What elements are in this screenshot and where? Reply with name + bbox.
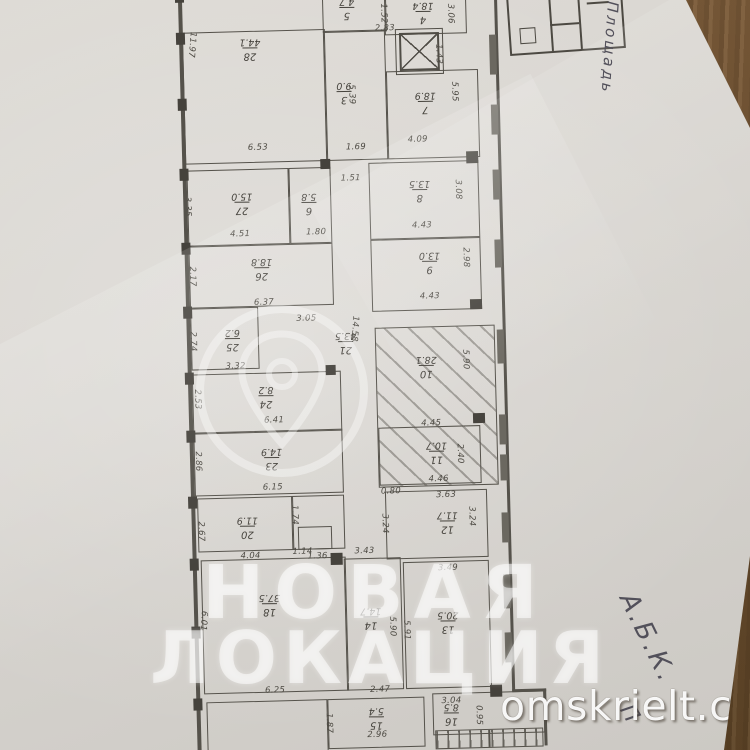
pier [175, 0, 184, 3]
dimension: 1.74 [289, 505, 300, 525]
watermark-site: omskrielt.com [500, 682, 750, 730]
handwriting: А.Б.К. [613, 588, 682, 688]
dimension: 2.67 [196, 521, 207, 541]
dimension: 6.53 [248, 143, 268, 154]
room-label-27: 2715.0 [231, 191, 252, 215]
dimension: 2.98 [461, 247, 472, 267]
dimension: 3.06 [445, 4, 456, 24]
dimension: 1.51 [341, 173, 361, 184]
pier [179, 169, 188, 181]
location-pin-logo-watermark [190, 296, 374, 486]
dimension: 3.24 [466, 506, 477, 526]
dimension: 1.80 [306, 227, 326, 238]
window [502, 512, 510, 542]
pier [473, 413, 485, 423]
dimension: 2.40 [455, 443, 466, 463]
elevator-shaft [399, 32, 440, 71]
dimension: 3.63 [436, 490, 456, 501]
dimension: 4.46 [428, 474, 448, 485]
window [497, 329, 505, 363]
window [491, 104, 499, 134]
inset-wall [519, 27, 536, 44]
dimension: 2.96 [367, 730, 387, 741]
dimension: 4.43 [412, 220, 432, 231]
paper: 2844.154.7418.439.0718.92715.065.8813.52… [0, 0, 750, 750]
room-label-20: 2011.9 [237, 515, 258, 539]
dimension: 5.39 [346, 84, 357, 104]
room-label-4: 418.4 [412, 0, 433, 24]
window [500, 454, 508, 480]
photo-background: 2844.154.7418.439.0718.92715.065.8813.52… [0, 0, 750, 750]
pier [181, 243, 190, 255]
room-label-28: 2844.1 [239, 37, 260, 61]
dimension: 3.24 [379, 513, 390, 533]
dimension: 4.09 [408, 134, 428, 145]
room-label-7: 718.9 [415, 90, 436, 114]
dimension: 11.97 [186, 32, 198, 59]
pier [193, 698, 202, 710]
room-label-5: 54.7 [339, 0, 354, 20]
room-7 [386, 69, 480, 159]
dimension: 1.87 [324, 713, 335, 733]
dimension: 4.43 [420, 291, 440, 302]
pier [466, 151, 478, 163]
room-label-9: 913.0 [419, 250, 440, 274]
inset-wall [577, 0, 583, 49]
room-label-11: 1110.7 [426, 440, 447, 464]
room-label-12: 1211.7 [437, 510, 458, 534]
room-label-10: 1028.1 [416, 354, 437, 378]
stairs [435, 728, 543, 750]
dimension: 0.80 [381, 486, 401, 497]
dimension: 1.69 [346, 142, 366, 153]
dimension: 4.45 [421, 418, 441, 429]
pier [470, 299, 482, 309]
window [499, 414, 507, 444]
pier [178, 99, 187, 111]
window [489, 35, 497, 75]
dimension: 4.51 [230, 229, 250, 240]
pier [320, 159, 330, 169]
pier [188, 496, 197, 508]
dimension: 2.83 [375, 23, 395, 34]
dimension: 1.52 [378, 3, 389, 23]
window [494, 239, 502, 267]
room-label-15: 155.4 [369, 706, 384, 730]
dimension: 0.95 [474, 705, 485, 725]
room-label-8: 813.5 [409, 178, 430, 202]
inset-wall [550, 22, 579, 26]
room-label-6: 65.8 [301, 191, 316, 215]
dimension: 3.08 [453, 179, 464, 199]
dimension: 5.90 [460, 349, 471, 369]
room [206, 699, 328, 750]
dimension: 5.95 [449, 81, 460, 101]
window [493, 169, 501, 199]
pier [176, 33, 185, 45]
room-label-26: 2618.8 [251, 257, 272, 281]
